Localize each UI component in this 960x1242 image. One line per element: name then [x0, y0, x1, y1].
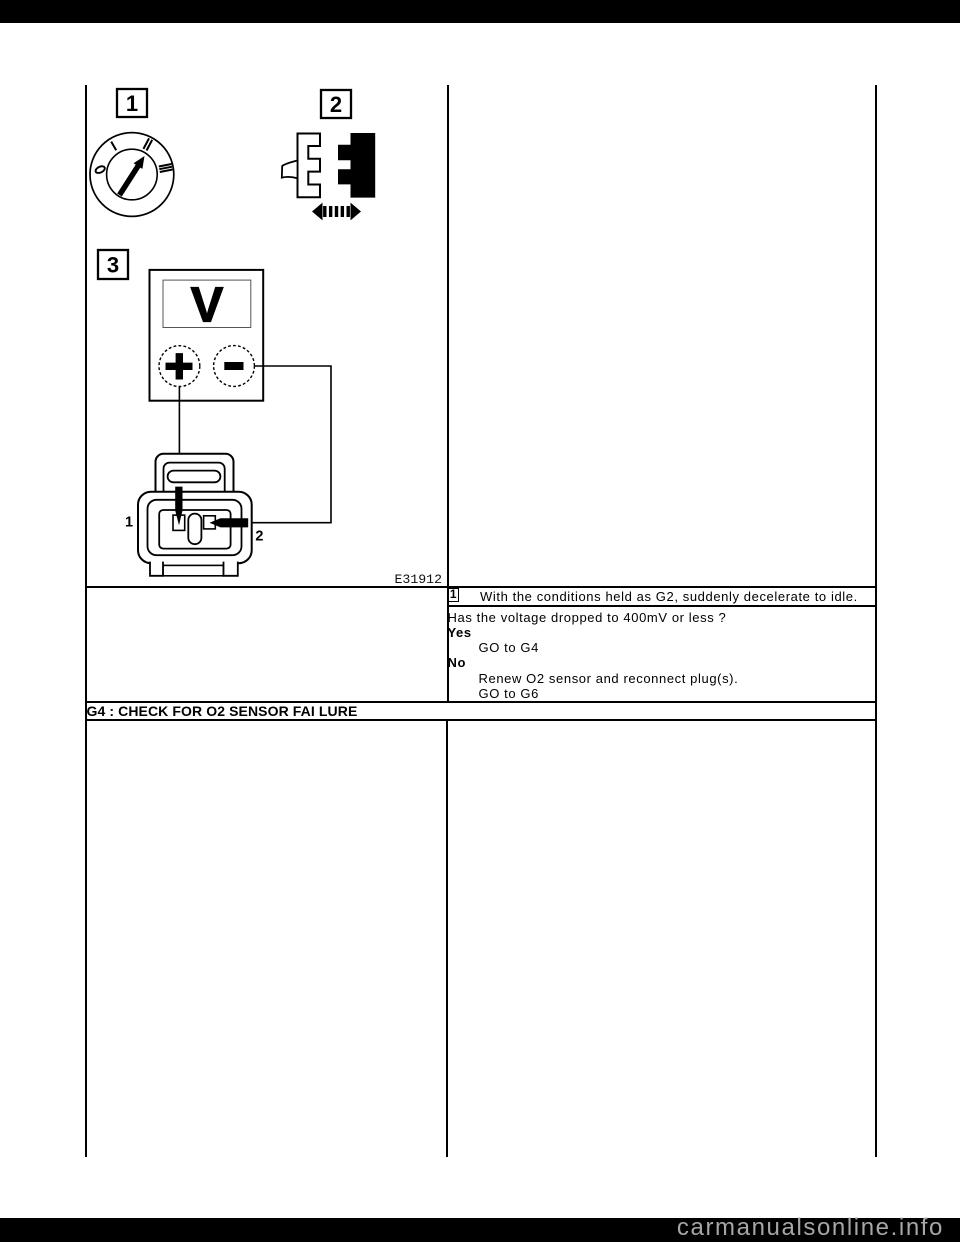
svg-text:1: 1 [126, 91, 138, 116]
svg-text:V: V [191, 279, 224, 333]
svg-text:1: 1 [125, 515, 133, 531]
svg-text:3: 3 [107, 253, 119, 278]
svg-text:2: 2 [330, 92, 342, 117]
svg-text:2: 2 [255, 529, 263, 545]
